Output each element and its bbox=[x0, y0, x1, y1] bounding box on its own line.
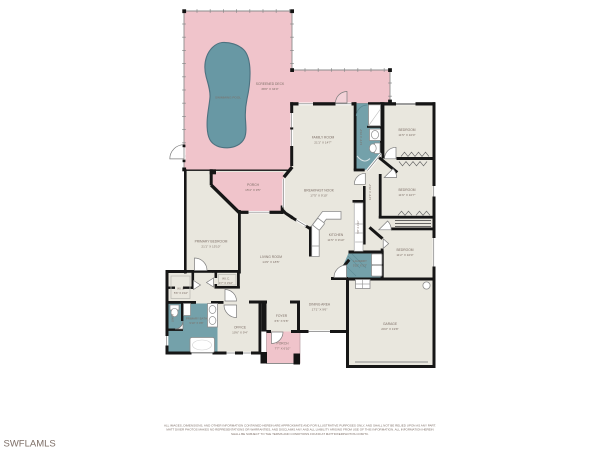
svg-text:12'1" X 3'11": 12'1" X 3'11" bbox=[368, 184, 372, 200]
svg-text:17'5" X 9'10": 17'5" X 9'10" bbox=[310, 193, 327, 197]
svg-text:LINEN: LINEN bbox=[171, 314, 175, 322]
svg-text:17'1" X 9'6": 17'1" X 9'6" bbox=[312, 307, 328, 311]
svg-text:12'1" X 4'11": 12'1" X 4'11" bbox=[359, 129, 363, 145]
svg-text:SCREENED DECK: SCREENED DECK bbox=[256, 82, 285, 86]
svg-text:SHALL BE SUBJECT TO THE TERMS: SHALL BE SUBJECT TO THE TERMS AND CONDIT… bbox=[231, 432, 369, 436]
svg-text:OFFICE: OFFICE bbox=[234, 326, 247, 330]
svg-text:PRIMARY BEDROOM: PRIMARY BEDROOM bbox=[195, 240, 228, 244]
svg-text:PORCH: PORCH bbox=[247, 183, 260, 187]
svg-text:DINING AREA: DINING AREA bbox=[309, 303, 331, 307]
svg-text:14'9" X 18'5": 14'9" X 18'5" bbox=[262, 260, 279, 264]
svg-text:FOYER: FOYER bbox=[276, 314, 288, 318]
svg-text:6'6" X 5'8": 6'6" X 5'8" bbox=[274, 319, 288, 323]
svg-text:10'6" X 9'4": 10'6" X 9'4" bbox=[232, 330, 248, 334]
svg-text:20'2" X 19'8": 20'2" X 19'8" bbox=[381, 327, 398, 331]
svg-text:4'7" X 3'10": 4'7" X 3'10" bbox=[219, 281, 233, 285]
svg-text:21'1" X 15'10": 21'1" X 15'10" bbox=[201, 244, 220, 248]
svg-text:11'5" X 9'10": 11'5" X 9'10" bbox=[327, 238, 344, 242]
svg-text:PORCH: PORCH bbox=[277, 342, 290, 346]
svg-text:FAMILY ROOM: FAMILY ROOM bbox=[312, 136, 335, 140]
svg-text:9'10" X 9'8": 9'10" X 9'8" bbox=[189, 321, 203, 325]
svg-text:15'4" X 9'5": 15'4" X 9'5" bbox=[245, 188, 261, 192]
svg-text:7'7" X 6'10": 7'7" X 6'10" bbox=[275, 346, 291, 350]
svg-text:SWFLAMLS: SWFLAMLS bbox=[4, 439, 56, 450]
svg-text:SWIMMING POOL: SWIMMING POOL bbox=[215, 96, 241, 100]
svg-text:11'2" X 10'0": 11'2" X 10'0" bbox=[396, 253, 413, 257]
svg-text:KITCHEN: KITCHEN bbox=[329, 233, 344, 237]
svg-text:LIVING ROOM: LIVING ROOM bbox=[260, 255, 282, 259]
svg-text:GARAGE: GARAGE bbox=[383, 322, 398, 326]
svg-text:BREAKFAST NOOK: BREAKFAST NOOK bbox=[304, 189, 335, 193]
svg-text:5'10" X 5'3": 5'10" X 5'3" bbox=[353, 263, 367, 267]
svg-text:38'0" X 34'0": 38'0" X 34'0" bbox=[261, 87, 278, 91]
svg-text:BEDROOM: BEDROOM bbox=[398, 128, 415, 132]
svg-text:21'1" X 14'7": 21'1" X 14'7" bbox=[314, 140, 331, 144]
svg-text:5'6" X 4'10": 5'6" X 4'10" bbox=[174, 291, 188, 295]
svg-text:11'5" X 10'0": 11'5" X 10'0" bbox=[398, 133, 415, 137]
svg-text:11'6" X 10'7": 11'6" X 10'7" bbox=[398, 193, 415, 197]
svg-text:BEDROOM: BEDROOM bbox=[396, 248, 413, 252]
svg-text:5'8" X 1'11": 5'8" X 1'11" bbox=[356, 220, 360, 234]
svg-text:BEDROOM: BEDROOM bbox=[398, 188, 415, 192]
